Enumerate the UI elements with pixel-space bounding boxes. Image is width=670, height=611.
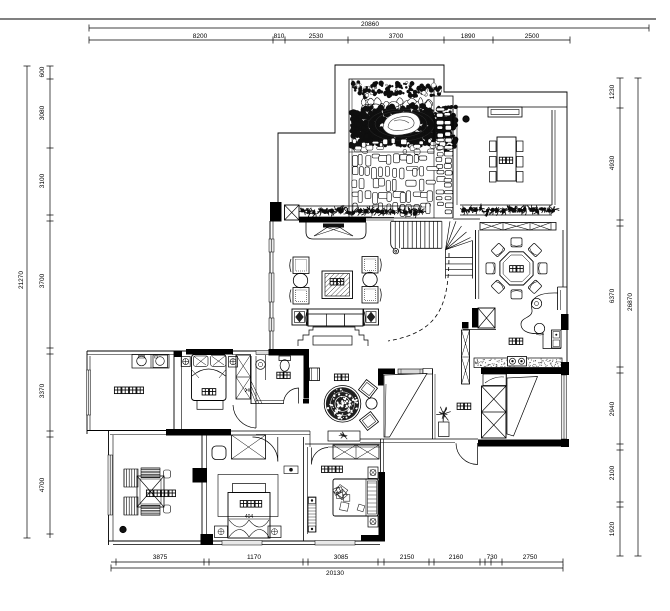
svg-text:810: 810 [274,33,285,40]
svg-text:730: 730 [487,554,498,561]
svg-text:1890: 1890 [461,33,476,40]
svg-text:3700: 3700 [39,273,46,288]
svg-text:3080: 3080 [39,105,46,120]
svg-text:3370: 3370 [39,383,46,398]
svg-text:2940: 2940 [609,401,616,416]
svg-text:1920: 1920 [609,521,616,536]
svg-text:2100: 2100 [609,465,616,480]
svg-text:1170: 1170 [247,554,261,561]
svg-text:1230: 1230 [609,84,616,99]
svg-text:3875: 3875 [153,554,168,561]
svg-text:3085: 3085 [334,554,349,561]
svg-text:4700: 4700 [39,477,46,492]
svg-text:20860: 20860 [361,21,379,28]
svg-text:20130: 20130 [326,570,344,577]
svg-text:2150: 2150 [400,554,415,561]
svg-text:26870: 26870 [627,293,634,311]
svg-text:21270: 21270 [18,271,25,289]
svg-text:8200: 8200 [193,33,208,40]
svg-text:3100: 3100 [39,173,46,188]
svg-text:2160: 2160 [449,554,464,561]
svg-text:2750: 2750 [523,554,538,561]
svg-text:4930: 4930 [609,155,616,170]
svg-text:3700: 3700 [389,33,404,40]
svg-text:2530: 2530 [309,33,324,40]
svg-text:2500: 2500 [525,33,540,40]
svg-text:600: 600 [39,66,46,77]
svg-text:404: 404 [245,514,254,520]
svg-text:6370: 6370 [609,288,616,303]
